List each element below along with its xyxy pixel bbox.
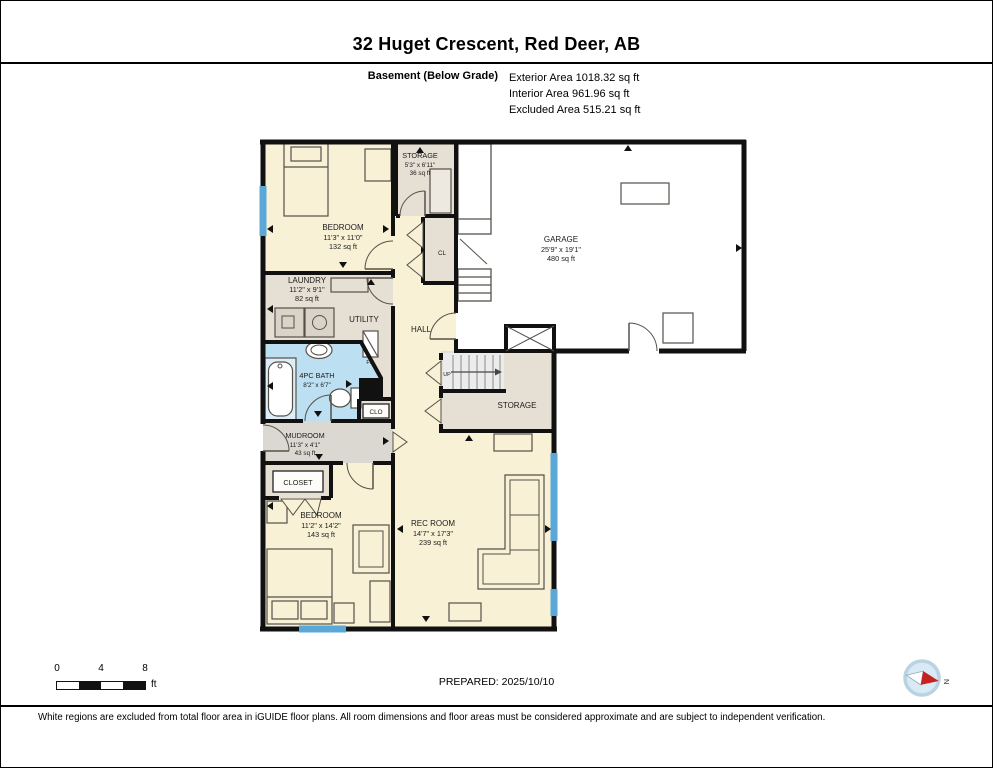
dryer — [305, 308, 334, 337]
label-bedroom-top-area: 132 sq ft — [329, 242, 357, 251]
footer-divider — [1, 705, 992, 707]
label-mudroom-area: 43 sq ft — [295, 450, 316, 457]
label-bedroom-bottom: BEDROOM — [300, 511, 342, 520]
rec-cabinet — [494, 434, 532, 451]
label-fn: FN — [366, 360, 373, 366]
label-closet: CLOSET — [283, 478, 313, 487]
compass-north-label: N — [942, 679, 951, 684]
label-laundry: LAUNDRY — [288, 276, 327, 285]
label-storage-top: STORAGE — [402, 151, 438, 160]
stairs-up — [443, 353, 504, 391]
bathtub — [265, 358, 296, 420]
window-bedroom-top — [260, 186, 267, 236]
window-rec-2 — [551, 589, 558, 616]
label-laundry-dims: 11'2" x 9'1" — [289, 285, 325, 294]
label-storage-mid: STORAGE — [498, 401, 537, 410]
floorplan-page: 32 Huget Crescent, Red Deer, AB Basement… — [0, 0, 993, 768]
label-garage: GARAGE — [544, 235, 578, 244]
window-bedroom-bottom — [299, 626, 346, 633]
toilet — [330, 388, 362, 408]
label-storage-top-area: 36 sq ft — [410, 170, 431, 177]
compass-icon: N — [894, 655, 956, 701]
wall-chunk — [359, 378, 383, 401]
label-rec-room: REC ROOM — [411, 519, 455, 528]
label-garage-area: 480 sq ft — [547, 254, 575, 263]
garage-workbench — [621, 183, 669, 204]
washer — [275, 308, 304, 337]
bed-single — [284, 143, 328, 216]
label-bath: 4PC BATH — [299, 371, 334, 380]
floorplan-drawing: BEDROOM 11'3" x 11'0" 132 sq ft STORAGE … — [1, 1, 993, 768]
room-mudroom — [263, 421, 393, 463]
label-bedroom-top: BEDROOM — [322, 223, 364, 232]
label-storage-top-dims: 5'3" x 6'11" — [405, 162, 436, 169]
clo-label-box: CLO — [363, 404, 389, 418]
garage-stairs — [458, 144, 491, 301]
label-bedroom-top-dims: 11'3" x 11'0" — [324, 233, 363, 242]
room-garage — [456, 140, 746, 353]
column-box — [506, 326, 554, 351]
label-rec-room-area: 239 sq ft — [419, 538, 447, 547]
label-garage-dims: 25'9" x 19'1" — [541, 245, 581, 254]
label-rec-room-dims: 14'7" x 17'3" — [413, 529, 453, 538]
shelf — [430, 169, 451, 213]
label-mudroom-dims: 11'3" x 4'1" — [290, 442, 321, 449]
label-utility: UTILITY — [349, 315, 379, 324]
label-hall: HALL — [411, 325, 432, 334]
scale-tick-8: 8 — [138, 663, 152, 674]
sink — [306, 342, 332, 359]
disclaimer-text: White regions are excluded from total fl… — [38, 712, 825, 723]
label-bedroom-bottom-dims: 11'2" x 14'2" — [301, 521, 341, 530]
window-rec-1 — [551, 453, 558, 541]
scale-tick-4: 4 — [94, 663, 108, 674]
label-cl: CL — [438, 250, 447, 257]
label-laundry-area: 82 sq ft — [295, 294, 319, 303]
label-bedroom-bottom-area: 143 sq ft — [307, 530, 335, 539]
label-bath-dims: 8'2" x 6'7" — [303, 382, 331, 389]
bed-double — [267, 549, 332, 624]
label-clo: CLO — [370, 409, 383, 416]
scale-tick-0: 0 — [50, 663, 64, 674]
closet-label-box: CLOSET — [273, 471, 323, 492]
label-mudroom: MUDROOM — [285, 431, 324, 440]
prepared-date: PREPARED: 2025/10/10 — [1, 676, 992, 688]
garage-box — [663, 313, 693, 343]
label-up: UP — [443, 372, 451, 378]
